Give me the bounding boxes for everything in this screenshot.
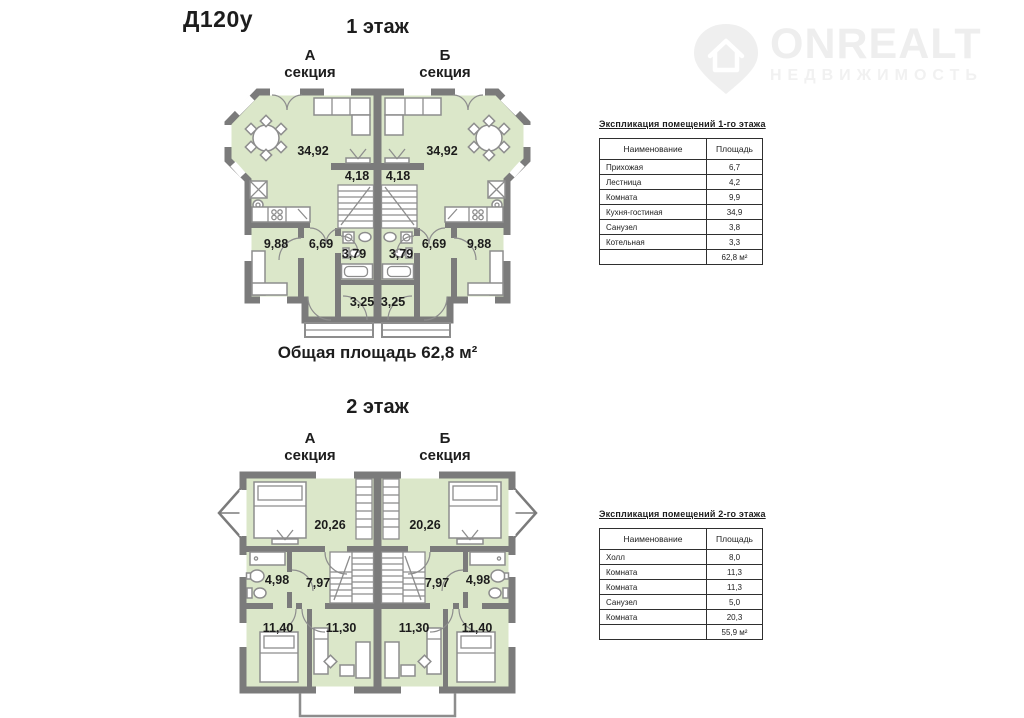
room-area-label: 6,69: [422, 237, 446, 251]
cell-room-area: 11,3: [707, 580, 763, 595]
table-row: Комната 20,3: [600, 610, 763, 625]
room-area-label: 4,18: [345, 169, 369, 183]
cell-room-name: Комната: [600, 580, 707, 595]
room-area-label: 9,88: [467, 237, 491, 251]
table-row: Лестница 4,2: [600, 175, 763, 190]
room-area-label: 7,97: [306, 576, 330, 590]
cell-room-area: 4,2: [707, 175, 763, 190]
room-area-label: 3,25: [381, 295, 405, 309]
section-letter: А: [275, 430, 345, 447]
room-area-label: 11,30: [399, 621, 430, 635]
porch-outline: [300, 693, 455, 716]
room-area-label: 34,92: [297, 144, 328, 158]
room-area-label: 4,98: [466, 573, 490, 587]
floor2-section-b-label: Б секция: [410, 430, 480, 464]
section-letter: А: [275, 47, 345, 64]
floor1-table: Наименование Площадь Прихожая 6,7 Лестни…: [599, 138, 763, 265]
logo-text: ONREALT НЕДВИЖИМОСТЬ: [770, 22, 983, 85]
column-header-area: Площадь: [707, 529, 763, 550]
floor1-total-area-caption: Общая площадь 62,8 м²: [210, 343, 545, 363]
cell-room-name: Прихожая: [600, 160, 707, 175]
table-row: Комната 11,3: [600, 565, 763, 580]
cell-room-area: 6,7: [707, 160, 763, 175]
cell-room-area: 20,3: [707, 610, 763, 625]
cell-room-name: Санузел: [600, 595, 707, 610]
table-row: Прихожая 6,7: [600, 160, 763, 175]
cell-room-area: 34,9: [707, 205, 763, 220]
floor1-heading: 1 этаж: [210, 16, 545, 39]
logo-name: ONREALT: [770, 22, 983, 66]
table-row: Санузел 3,8: [600, 220, 763, 235]
floor2-plan: 20,26 20,26 4,98 4,98 7,97 7,97 11,40 11…: [210, 460, 545, 718]
cell-room-name: Санузел: [600, 220, 707, 235]
floor2-section-a-label: А секция: [275, 430, 345, 464]
table-total-row: 55,9 м²: [600, 625, 763, 640]
floor1-section-b-label: Б секция: [410, 47, 480, 81]
cell-total-area: 55,9 м²: [707, 625, 763, 640]
floor2-heading: 2 этаж: [210, 396, 545, 419]
room-area-label: 20,26: [314, 518, 345, 532]
column-header-name: Наименование: [600, 139, 707, 160]
cell-room-area: 9,9: [707, 190, 763, 205]
floor1-plan: 34,92 34,92 4,18 4,18 9,88 9,88 6,69 6,6…: [210, 85, 545, 345]
table-row: Кухня-гостиная 34,9: [600, 205, 763, 220]
room-area-label: 34,92: [426, 144, 457, 158]
cell-room-name: Котельная: [600, 235, 707, 250]
room-area-label: 3,25: [350, 295, 374, 309]
room-area-label: 7,97: [425, 576, 449, 590]
cell-room-name: Холл: [600, 550, 707, 565]
room-area-label: 9,88: [264, 237, 288, 251]
logo-subtitle: НЕДВИЖИМОСТЬ: [770, 67, 983, 85]
cell-empty: [600, 625, 707, 640]
room-area-label: 3,79: [389, 247, 413, 261]
table-total-row: 62,8 м²: [600, 250, 763, 265]
table-row: Санузел 5,0: [600, 595, 763, 610]
cell-room-area: 5,0: [707, 595, 763, 610]
room-area-label: 4,18: [386, 169, 410, 183]
cell-room-area: 8,0: [707, 550, 763, 565]
cell-empty: [600, 250, 707, 265]
party-wall: [374, 92, 382, 320]
room-area-label: 20,26: [409, 518, 440, 532]
cell-room-area: 11,3: [707, 565, 763, 580]
table-row: Комната 9,9: [600, 190, 763, 205]
cell-room-area: 3,8: [707, 220, 763, 235]
cell-room-name: Комната: [600, 610, 707, 625]
floor2-room-schedule: Экспликация помещений 2-го этажа Наимено…: [599, 509, 779, 640]
cell-room-name: Комната: [600, 190, 707, 205]
table-row: Холл 8,0: [600, 550, 763, 565]
cell-room-name: Кухня-гостиная: [600, 205, 707, 220]
logo-pin-icon: [690, 22, 762, 96]
cell-room-area: 3,3: [707, 235, 763, 250]
room-area-label: 11,30: [326, 621, 357, 635]
party-wall: [374, 475, 382, 690]
cell-room-name: Комната: [600, 565, 707, 580]
floor1-room-schedule: Экспликация помещений 1-го этажа Наимено…: [599, 119, 779, 265]
floor1-section-a-label: А секция: [275, 47, 345, 81]
column-header-name: Наименование: [600, 529, 707, 550]
table-row: Котельная 3,3: [600, 235, 763, 250]
section-letter: Б: [410, 430, 480, 447]
floor2-table: Наименование Площадь Холл 8,0 Комната 11…: [599, 528, 763, 640]
room-area-label: 4,98: [265, 573, 289, 587]
cell-total-area: 62,8 м²: [707, 250, 763, 265]
room-area-label: 11,40: [462, 621, 493, 635]
table-row: Комната 11,3: [600, 580, 763, 595]
column-header-area: Площадь: [707, 139, 763, 160]
section-letter: Б: [410, 47, 480, 64]
cell-room-name: Лестница: [600, 175, 707, 190]
room-area-label: 11,40: [263, 621, 294, 635]
room-area-label: 3,79: [342, 247, 366, 261]
section-word: секция: [275, 64, 345, 81]
room-area-label: 6,69: [309, 237, 333, 251]
table-title: Экспликация помещений 1-го этажа: [599, 119, 779, 129]
onrealt-logo: ONREALT НЕДВИЖИМОСТЬ: [690, 22, 983, 96]
table-title: Экспликация помещений 2-го этажа: [599, 509, 779, 519]
floorplan-sheet: Д120у ONREALT НЕДВИЖИМОСТЬ 1 этаж А секц…: [0, 0, 1024, 718]
section-word: секция: [410, 64, 480, 81]
